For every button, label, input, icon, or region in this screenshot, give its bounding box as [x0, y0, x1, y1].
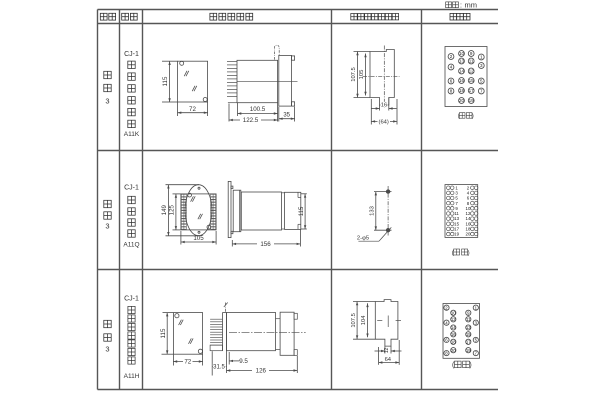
svg-text:A11Q: A11Q	[123, 242, 139, 249]
svg-text::: :	[460, 2, 462, 9]
svg-text:149: 149	[161, 204, 168, 215]
svg-text:9: 9	[470, 51, 473, 56]
svg-text:17: 17	[469, 88, 475, 93]
svg-text:12: 12	[384, 348, 390, 354]
svg-text:2-φ5: 2-φ5	[357, 236, 369, 242]
svg-text:CJ-1: CJ-1	[124, 296, 139, 303]
svg-text:20: 20	[466, 232, 471, 237]
svg-text:13: 13	[459, 59, 465, 64]
svg-text:20: 20	[451, 348, 456, 353]
svg-text:13: 13	[466, 325, 471, 330]
svg-text:): )	[472, 114, 474, 120]
svg-text:115: 115	[160, 328, 167, 338]
svg-text:A11H: A11H	[124, 373, 140, 380]
svg-text:5: 5	[480, 79, 483, 84]
svg-text:72: 72	[184, 358, 191, 365]
svg-text:19: 19	[454, 232, 459, 237]
svg-text:12: 12	[451, 317, 456, 322]
svg-text:15: 15	[466, 332, 471, 337]
svg-text:): )	[469, 362, 471, 369]
svg-text:3: 3	[480, 63, 483, 68]
svg-text:CJ-1: CJ-1	[124, 51, 139, 58]
svg-text:16: 16	[451, 332, 456, 337]
svg-text:105: 105	[193, 235, 204, 242]
svg-text:125: 125	[169, 204, 176, 215]
svg-text:10: 10	[451, 310, 456, 315]
svg-text:156: 156	[260, 241, 271, 248]
svg-text:35: 35	[283, 113, 290, 119]
svg-text:115: 115	[299, 206, 305, 216]
svg-text:2: 2	[450, 54, 453, 59]
svg-text:15: 15	[469, 78, 475, 83]
svg-text:19: 19	[469, 98, 475, 103]
svg-text:12: 12	[469, 69, 475, 74]
svg-text:14: 14	[451, 325, 456, 330]
svg-text:8: 8	[450, 89, 453, 94]
svg-text:3: 3	[105, 97, 109, 106]
svg-text:1: 1	[480, 55, 483, 60]
svg-text:100.5: 100.5	[250, 106, 266, 113]
svg-text:14: 14	[459, 69, 465, 74]
svg-text:17: 17	[466, 339, 471, 344]
svg-text:126: 126	[256, 368, 267, 375]
svg-text:105: 105	[359, 70, 365, 80]
svg-text:CJ-1: CJ-1	[124, 185, 139, 192]
svg-text:115: 115	[162, 76, 169, 86]
svg-text:A11K: A11K	[124, 131, 140, 138]
svg-text:3: 3	[105, 345, 109, 354]
svg-text:(64): (64)	[379, 120, 389, 126]
svg-text:): )	[468, 249, 470, 256]
svg-text:11: 11	[466, 317, 471, 322]
svg-text:31.5: 31.5	[213, 365, 225, 371]
svg-text:133: 133	[370, 206, 376, 216]
svg-text:4: 4	[450, 65, 453, 70]
svg-text:mm: mm	[465, 0, 478, 9]
svg-text:107.5: 107.5	[351, 67, 357, 82]
svg-text:16: 16	[459, 78, 465, 83]
svg-text:72: 72	[189, 106, 196, 113]
svg-text:9.5: 9.5	[239, 358, 248, 365]
svg-text:122.5: 122.5	[243, 117, 259, 124]
svg-text:64: 64	[385, 357, 392, 363]
svg-text:16: 16	[381, 103, 387, 109]
svg-text:10: 10	[459, 51, 465, 56]
svg-text:104: 104	[361, 315, 367, 325]
svg-text:3: 3	[105, 222, 109, 231]
svg-text:107.5: 107.5	[351, 313, 357, 328]
svg-text:18: 18	[451, 339, 456, 344]
svg-text:11: 11	[469, 59, 474, 64]
svg-text:6: 6	[450, 79, 453, 84]
svg-text:18: 18	[459, 88, 465, 93]
svg-text:20: 20	[459, 98, 465, 103]
svg-text:19: 19	[466, 348, 471, 353]
svg-text:7: 7	[480, 89, 483, 94]
